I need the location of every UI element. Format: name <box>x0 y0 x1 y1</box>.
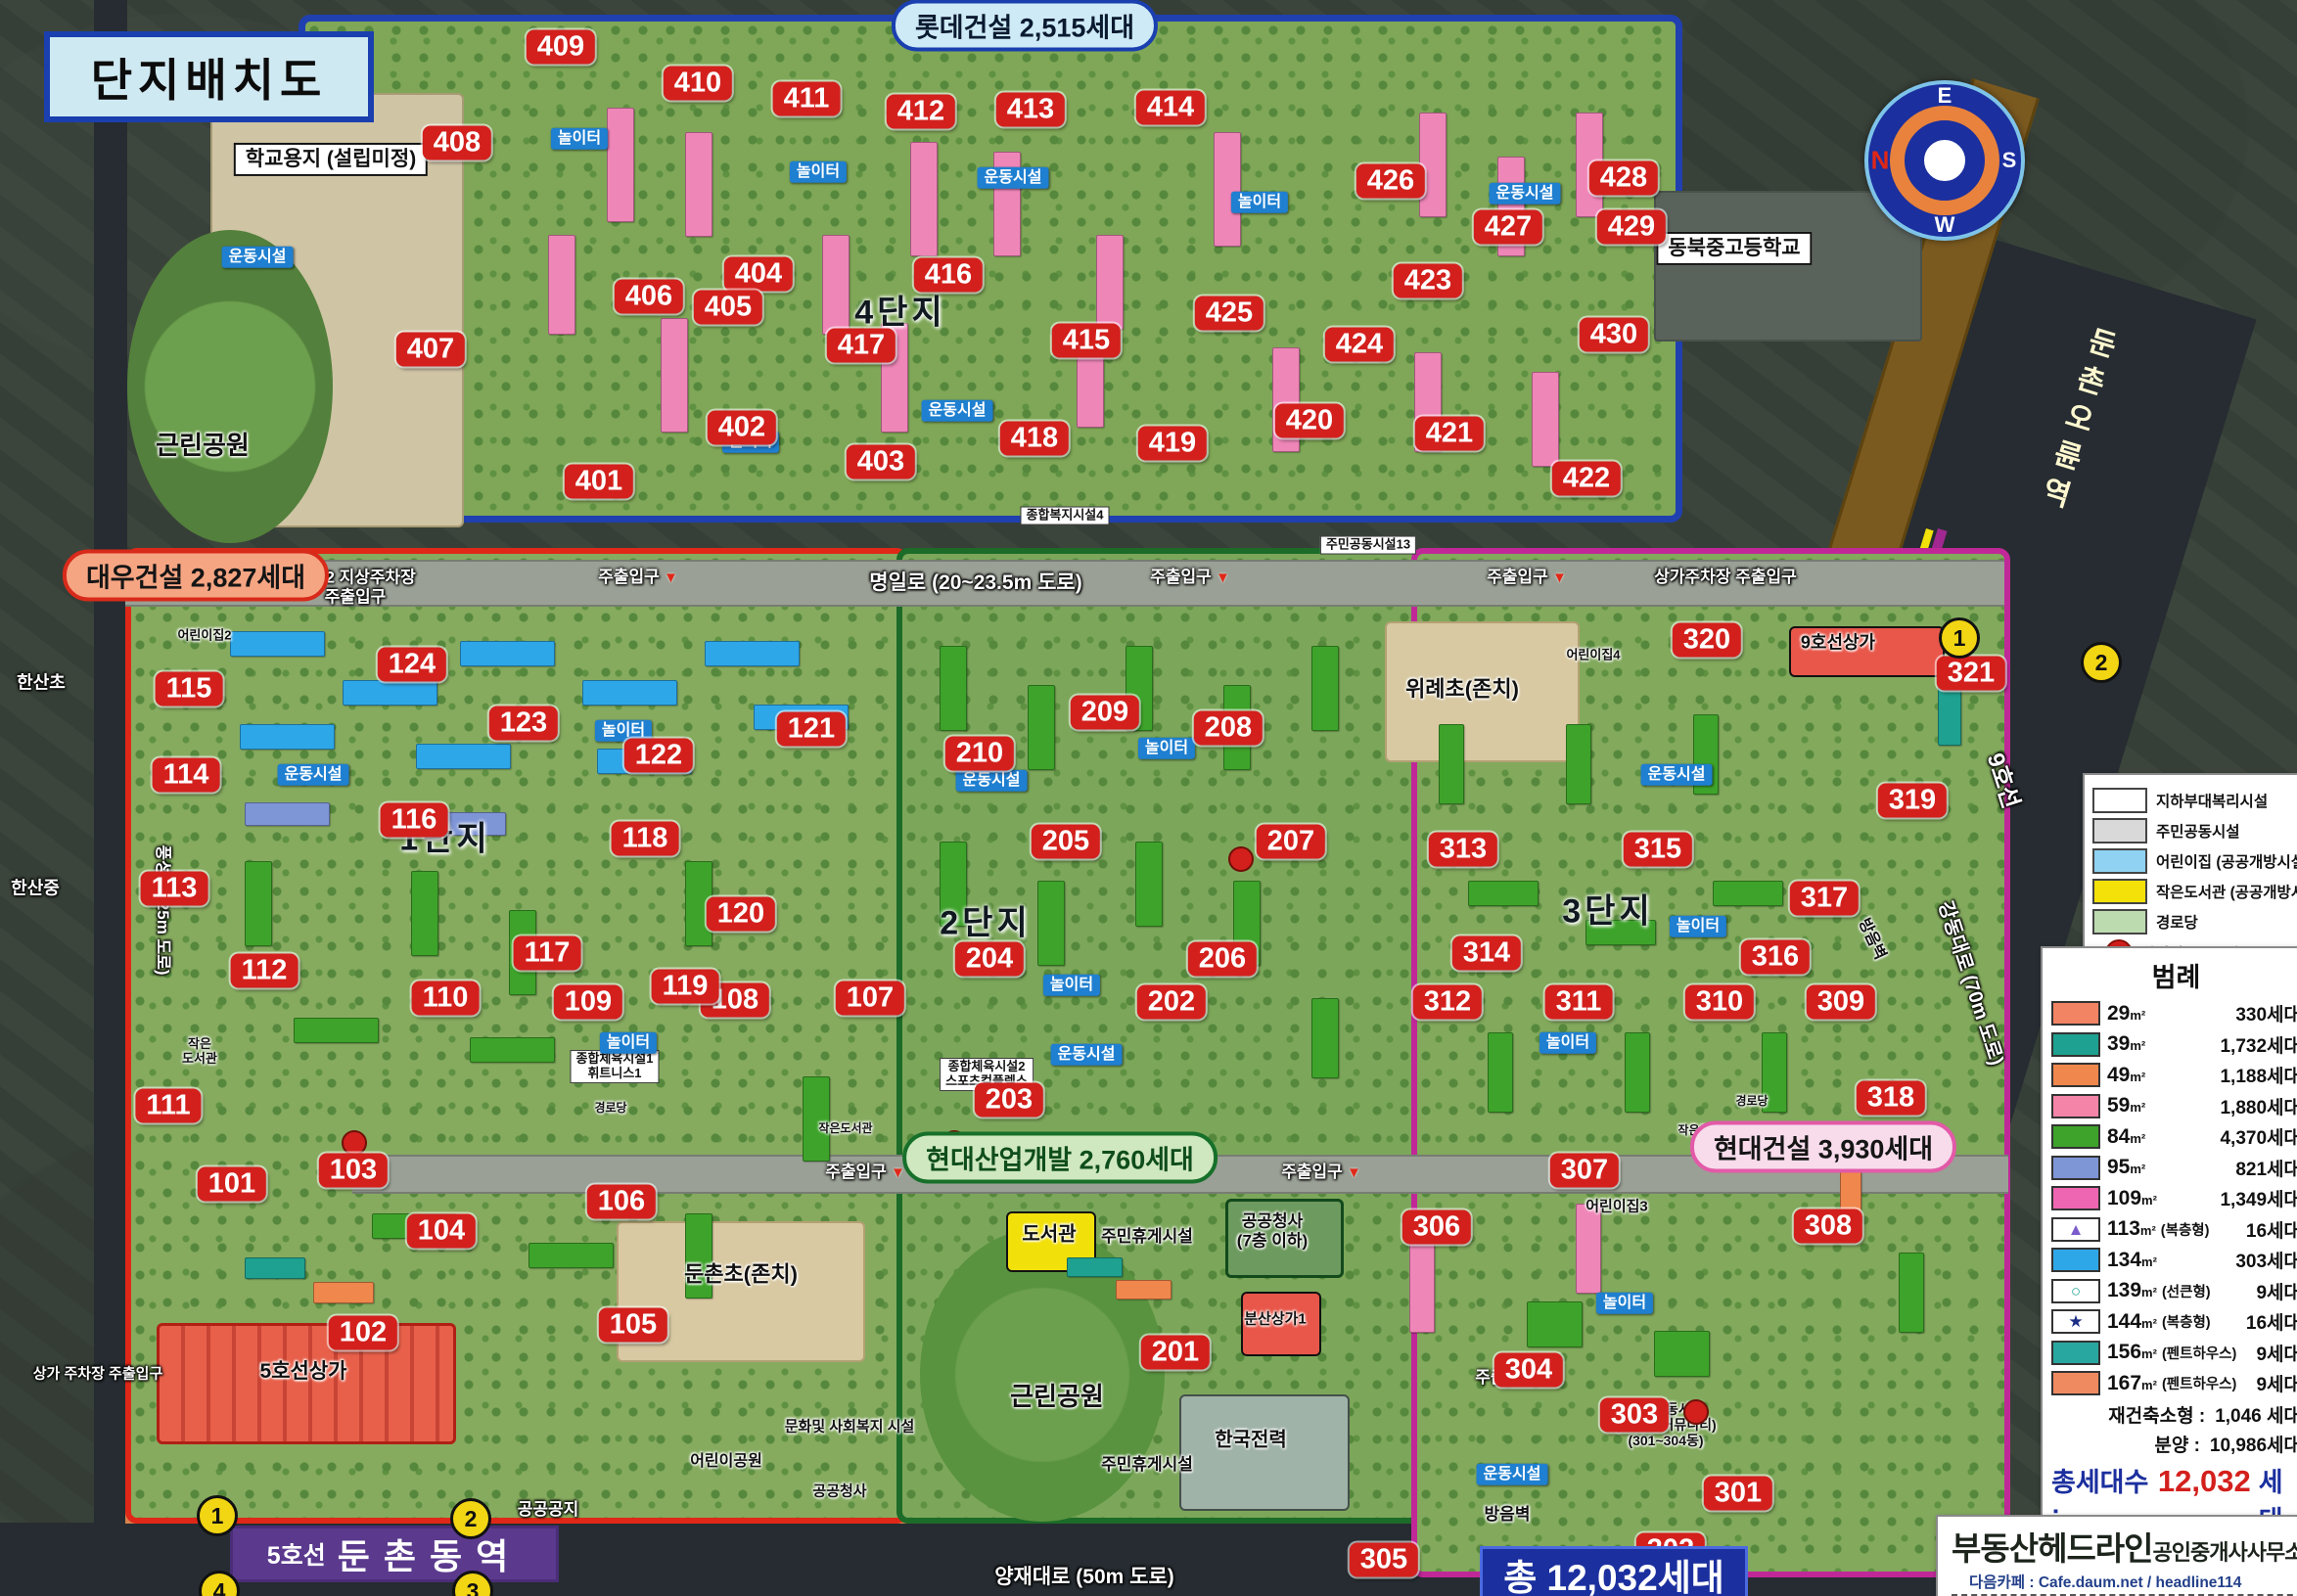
line5-station-name: 둔촌동역 <box>338 1528 522 1579</box>
map-label: 작은도서관 <box>818 1122 872 1136</box>
area-size: 59m² <box>2107 1094 2145 1117</box>
building-footprint <box>661 318 688 433</box>
map-label: 어린이집2 <box>177 629 231 644</box>
facility-label: 놀이터 <box>1043 975 1100 996</box>
facility-label: 운동시설 <box>956 770 1028 792</box>
map-label: 문화및 사회복지 시설 <box>785 1418 915 1435</box>
building-badge-115: 115 <box>156 672 223 707</box>
exit-number-icon: 2 <box>2081 642 2122 683</box>
facility-swatch <box>2092 788 2147 813</box>
area-legend-row: 95m²821세대 <box>2051 1155 2297 1181</box>
building-badge-304: 304 <box>1494 1353 1563 1388</box>
building-badge-417: 417 <box>827 329 896 363</box>
map-label: 어린이집4 <box>1566 649 1620 663</box>
building-badge-429: 429 <box>1597 210 1666 245</box>
building-badge-103: 103 <box>319 1154 388 1188</box>
map-title-box: 단지배치도 <box>44 31 374 122</box>
building-footprint <box>1135 842 1163 927</box>
building-footprint <box>1116 1280 1171 1300</box>
area-legend-rows: 29m²330세대39m²1,732세대49m²1,188세대59m²1,880… <box>2051 1000 2297 1396</box>
total-households-badge: 총 12,032세대 <box>1480 1546 1748 1596</box>
kepco-plot <box>1179 1394 1350 1511</box>
building-footprint <box>1214 132 1241 247</box>
building-badge-403: 403 <box>847 445 915 479</box>
area-legend-row: 29m²330세대 <box>2051 1000 2297 1026</box>
map-label: 경로당 <box>594 1102 626 1116</box>
building-footprint <box>1028 685 1055 770</box>
building-badge-408: 408 <box>423 126 491 160</box>
building-footprint <box>1566 724 1591 804</box>
site-plan-map: 단지배치도 E S W N 둔촌오륜역 5호선 둔촌동역 총 12,032세대 … <box>0 0 2297 1596</box>
building-footprint <box>1037 881 1065 966</box>
building-footprint <box>1439 724 1464 804</box>
building-badge-413: 413 <box>996 93 1065 127</box>
park-center <box>920 1228 1165 1522</box>
building-badge-311: 311 <box>1545 985 1613 1020</box>
facility-label: 운동시설 <box>1641 764 1713 786</box>
building-badge-415: 415 <box>1052 324 1121 358</box>
map-label: 9호선상가 <box>1801 633 1875 654</box>
realtor-office-type: 공인중개사사무소 <box>2153 1540 2297 1565</box>
area-count: 1,349세대 <box>2220 1185 2297 1211</box>
map-label: 주민휴게시설 <box>1101 1455 1193 1475</box>
entrance-label: 주출입구 ▼ <box>1487 568 1567 587</box>
building-badge-320: 320 <box>1673 623 1741 658</box>
map-label: 3단지 <box>1562 892 1653 931</box>
building-badge-118: 118 <box>612 822 679 856</box>
building-footprint <box>1938 685 1961 746</box>
building-badge-418: 418 <box>1000 422 1069 456</box>
facility-swatch <box>2092 848 2147 874</box>
area-size: 139m² <box>2107 1279 2157 1302</box>
entrance-label: 주출입구 ▼ <box>598 568 678 587</box>
area-legend-row: 156m²(펜트하우스)9세대 <box>2051 1340 2297 1366</box>
map-label: 경로당 <box>1735 1095 1768 1109</box>
building-badge-409: 409 <box>527 30 595 65</box>
building-footprint <box>705 641 800 666</box>
park-nw <box>127 230 333 543</box>
map-label: 한국전력 <box>1215 1430 1287 1452</box>
legend-summary-rows: 재건축소형 :1,046 세대분양 :10,986세대 <box>2051 1401 2297 1457</box>
total-households-text: 총 12,032세대 <box>1503 1548 1724 1596</box>
summary-value: 10,986세대 <box>2210 1431 2297 1457</box>
map-label: 분산상가1 <box>1244 1310 1307 1327</box>
building-badge-419: 419 <box>1138 427 1207 461</box>
area-size: 84m² <box>2107 1125 2145 1149</box>
building-footprint <box>528 1243 614 1268</box>
building-badge-317: 317 <box>1790 882 1859 916</box>
facility-label: 놀이터 <box>790 161 847 183</box>
facility-label: 운동시설 <box>978 167 1049 189</box>
builder-badge: 현대건설 3,930세대 <box>1690 1121 1956 1173</box>
building-footprint <box>1899 1253 1924 1333</box>
building-badge-209: 209 <box>1071 696 1139 730</box>
legend-title: 범례 <box>2051 956 2297 994</box>
building-badge-315: 315 <box>1624 833 1692 867</box>
building-footprint <box>1654 1331 1710 1377</box>
area-count: 16세대 <box>2246 1216 2297 1243</box>
building-badge-201: 201 <box>1141 1336 1210 1370</box>
building-footprint <box>822 235 850 335</box>
area-size: 39m² <box>2107 1032 2145 1056</box>
building-footprint <box>245 802 330 826</box>
building-badge-314: 314 <box>1452 936 1521 971</box>
building-badge-109: 109 <box>554 985 622 1020</box>
area-count: 9세대 <box>2256 1278 2297 1304</box>
building-badge-412: 412 <box>887 95 955 129</box>
road-west <box>94 0 127 1596</box>
building-footprint <box>1527 1301 1583 1347</box>
area-size: 167m² <box>2107 1372 2157 1395</box>
building-badge-401: 401 <box>565 465 633 499</box>
area-legend-row: ▲113m²(복층형)16세대 <box>2051 1216 2297 1243</box>
facility-label: 운동시설 <box>1051 1044 1123 1066</box>
building-badge-122: 122 <box>624 739 693 773</box>
area-count: 9세대 <box>2256 1340 2297 1366</box>
building-badge-121: 121 <box>777 712 846 747</box>
building-badge-303: 303 <box>1600 1398 1669 1433</box>
facility-legend-label: 지하부대복리시설 <box>2156 790 2268 811</box>
facility-label: 운동시설 <box>1490 183 1561 205</box>
area-size: 156m² <box>2107 1341 2157 1364</box>
map-label: 학교용지 (설립미정) <box>234 143 428 176</box>
building-badge-428: 428 <box>1589 161 1658 196</box>
building-footprint <box>910 142 938 256</box>
building-badge-117: 117 <box>514 936 581 971</box>
map-label: 도서관 <box>1022 1224 1076 1247</box>
area-size: 109m² <box>2107 1187 2157 1210</box>
building-badge-430: 430 <box>1580 318 1648 352</box>
building-badge-305: 305 <box>1350 1543 1418 1577</box>
area-count: 330세대 <box>2235 1000 2297 1026</box>
building-footprint <box>607 108 634 222</box>
map-label: 주민휴게시설 <box>1101 1227 1193 1247</box>
facility-legend-row: 작은도서관 (공공개방시설) <box>2092 879 2297 904</box>
builder-badge: 롯데건설 2,515세대 <box>892 0 1158 52</box>
area-legend-row: 167m²(펜트하우스)9세대 <box>2051 1370 2297 1396</box>
area-size: 29m² <box>2107 1002 2145 1026</box>
area-legend-row: 84m²4,370세대 <box>2051 1123 2297 1150</box>
summary-label: 분양 : <box>2154 1431 2200 1457</box>
area-size: 144m² <box>2107 1310 2157 1334</box>
building-footprint <box>1576 1204 1601 1294</box>
map-label: 어린이공원 <box>690 1453 762 1471</box>
building-badge-427: 427 <box>1474 210 1542 245</box>
builder-badge: 대우건설 2,827세대 <box>63 550 329 602</box>
facility-legend-label: 주민공동시설 <box>2156 820 2240 842</box>
summary-value: 1,046 세대 <box>2215 1401 2297 1428</box>
exit-number-icon: 1 <box>197 1495 238 1536</box>
entrance-label: 주출입구 ▼ <box>1281 1163 1361 1182</box>
facility-swatch <box>2092 879 2147 904</box>
area-count: 4,370세대 <box>2220 1123 2297 1150</box>
map-label: 풍성로 (25m 도로) <box>153 845 172 976</box>
map-label: 둔촌초(존치) <box>684 1261 798 1286</box>
area-note: (선큰형) <box>2162 1281 2211 1301</box>
area-legend-row: 49m²1,188세대 <box>2051 1062 2297 1088</box>
building-badge-405: 405 <box>694 291 762 325</box>
building-footprint <box>313 1282 374 1303</box>
grand-total-value: 12,032 <box>2158 1464 2251 1499</box>
school-ne-campus <box>1654 191 1922 342</box>
building-badge-202: 202 <box>1137 985 1206 1020</box>
area-note: (펜트하우스) <box>2162 1343 2236 1363</box>
area-swatch <box>2051 1063 2100 1087</box>
facility-legend-label: 경로당 <box>2156 911 2198 933</box>
building-badge-203: 203 <box>975 1083 1043 1117</box>
building-footprint <box>1625 1032 1650 1113</box>
area-legend-row: ○139m²(선큰형)9세대 <box>2051 1278 2297 1304</box>
building-badge-107: 107 <box>836 981 904 1016</box>
map-label: 한산중 <box>11 879 60 899</box>
building-badge-208: 208 <box>1194 711 1263 746</box>
area-count: 16세대 <box>2246 1308 2297 1335</box>
area-size: 134m² <box>2107 1249 2157 1272</box>
building-badge-307: 307 <box>1550 1154 1619 1188</box>
building-badge-422: 422 <box>1552 462 1621 496</box>
building-badge-425: 425 <box>1195 296 1263 331</box>
map-label: 공공공지 <box>518 1500 579 1520</box>
map-label: 종합체육시설1 휘트니스1 <box>571 1050 660 1083</box>
compass-east: E <box>1938 83 1952 109</box>
area-legend-panel: 범례 29m²330세대39m²1,732세대49m²1,188세대59m²1,… <box>2041 946 2297 1547</box>
facility-legend-row: 어린이집 (공공개방시설) <box>2092 848 2297 874</box>
builder-badge: 현대산업개발 2,760세대 <box>902 1132 1217 1184</box>
building-footprint <box>245 1257 305 1279</box>
building-footprint <box>582 680 677 706</box>
compass-south: S <box>2002 148 2017 173</box>
building-footprint <box>470 1037 555 1063</box>
area-swatch <box>2051 1371 2100 1395</box>
area-size: 95m² <box>2107 1156 2145 1179</box>
facility-swatch <box>2092 818 2147 844</box>
map-label: 명일로 (20~23.5m 도로) <box>869 571 1081 595</box>
building-footprint <box>1067 1257 1123 1277</box>
area-count: 1,880세대 <box>2220 1093 2297 1119</box>
building-footprint <box>411 871 438 956</box>
area-count: 821세대 <box>2235 1155 2297 1181</box>
facility-label: 운동시설 <box>1477 1464 1548 1485</box>
building-badge-421: 421 <box>1415 417 1484 451</box>
building-badge-204: 204 <box>955 942 1024 977</box>
area-legend-row: ★144m²(복층형)16세대 <box>2051 1308 2297 1335</box>
map-label: 4단지 <box>854 294 945 332</box>
building-badge-321: 321 <box>1937 657 2005 691</box>
area-size: 113m² <box>2107 1217 2156 1241</box>
area-count: 303세대 <box>2235 1247 2297 1273</box>
building-footprint <box>1311 646 1339 731</box>
building-badge-101: 101 <box>198 1167 266 1202</box>
compass-north: N <box>1871 146 1890 176</box>
building-badge-207: 207 <box>1257 825 1325 859</box>
map-label: 2단지 <box>940 904 1031 942</box>
facility-label: 놀이터 <box>1596 1293 1653 1314</box>
building-badge-406: 406 <box>615 280 683 314</box>
legend-summary-row: 분양 :10,986세대 <box>2051 1431 2297 1457</box>
area-swatch <box>2051 1032 2100 1057</box>
compass-west: W <box>1935 212 1955 238</box>
building-badge-124: 124 <box>378 648 446 682</box>
area-swatch <box>2051 1156 2100 1180</box>
building-footprint <box>1409 1243 1435 1333</box>
building-badge-420: 420 <box>1275 404 1344 438</box>
building-badge-308: 308 <box>1794 1209 1862 1244</box>
exit-number-icon: 2 <box>450 1498 491 1539</box>
building-badge-407: 407 <box>396 333 465 367</box>
area-note: (복층형) <box>2162 1311 2211 1332</box>
facility-label: 놀이터 <box>600 1032 657 1054</box>
building-badge-112: 112 <box>231 954 299 988</box>
building-footprint <box>245 861 272 946</box>
special-facility-dot-icon <box>1228 846 1254 872</box>
building-badge-301: 301 <box>1704 1477 1772 1511</box>
facility-label: 운동시설 <box>922 400 993 422</box>
building-badge-210: 210 <box>945 737 1014 771</box>
building-badge-410: 410 <box>664 67 732 101</box>
facility-swatch <box>2092 909 2147 935</box>
area-swatch <box>2051 1248 2100 1272</box>
map-label: 종합복지시설4 <box>1021 507 1110 525</box>
legend-summary-row: 재건축소형 :1,046 세대 <box>2051 1401 2297 1428</box>
area-swatch <box>2051 1124 2100 1149</box>
facility-legend-label: 작은도서관 (공공개방시설) <box>2156 881 2297 902</box>
map-label: 근린공원 <box>156 432 250 461</box>
building-footprint <box>240 724 335 750</box>
entrance-label: 주출입구 ▼ <box>825 1163 905 1182</box>
realtor-name: 부동산헤드라인공인중개사사무소 <box>1952 1523 2297 1570</box>
area-swatch <box>2051 1094 2100 1118</box>
area-legend-row: 39m²1,732세대 <box>2051 1031 2297 1058</box>
building-badge-123: 123 <box>489 707 558 741</box>
building-footprint <box>1468 881 1539 906</box>
area-legend-row: 109m²1,349세대 <box>2051 1185 2297 1211</box>
building-footprint <box>343 680 437 706</box>
facility-label: 운동시설 <box>222 247 294 268</box>
map-label: 공공청사 (7층 이하) <box>1237 1211 1308 1250</box>
realtor-cafe: 다음카페 : Cafe.daum.net / headline114 <box>1969 1571 2297 1592</box>
building-badge-120: 120 <box>707 897 775 932</box>
building-footprint <box>685 132 712 237</box>
facility-label: 놀이터 <box>1670 916 1726 937</box>
map-label: 상가 주차장 주출입구 <box>33 1365 163 1382</box>
building-badge-116: 116 <box>381 803 448 838</box>
building-badge-416: 416 <box>914 258 983 293</box>
line5-number: 5호선 <box>267 1536 326 1572</box>
building-footprint <box>1713 881 1783 906</box>
area-legend-row: 134m²303세대 <box>2051 1247 2297 1273</box>
area-count: 1,732세대 <box>2220 1031 2297 1058</box>
compass-hub <box>1921 137 1968 184</box>
building-badge-402: 402 <box>708 411 776 445</box>
entrance-label: 주출입구 ▼ <box>1150 568 1230 587</box>
map-label: 위례초(존치) <box>1405 676 1519 701</box>
building-badge-111: 111 <box>135 1089 201 1123</box>
area-note: (복층형) <box>2161 1219 2210 1240</box>
building-footprint <box>548 235 575 335</box>
realtor-info-panel: 부동산헤드라인공인중개사사무소 다음카페 : Cafe.daum.net / h… <box>1936 1515 2297 1596</box>
page-title: 단지배치도 <box>91 45 328 110</box>
summary-label: 재건축소형 : <box>2108 1401 2205 1428</box>
exit-number-icon: 1 <box>1939 617 1980 659</box>
building-badge-205: 205 <box>1032 825 1100 859</box>
building-badge-316: 316 <box>1741 940 1810 975</box>
special-facility-dot-icon <box>1683 1399 1709 1425</box>
facility-legend-row: 주민공동시설 <box>2092 818 2297 844</box>
building-badge-404: 404 <box>724 257 793 292</box>
building-footprint <box>230 631 325 657</box>
map-label: 작은 도서관 <box>182 1037 217 1067</box>
building-badge-424: 424 <box>1325 328 1394 362</box>
special-facility-dot-icon <box>342 1130 367 1156</box>
area-size: 49m² <box>2107 1064 2145 1087</box>
area-swatch <box>2051 1186 2100 1210</box>
map-label: 동북중고등학교 <box>1656 232 1812 265</box>
map-label: 상가주차장 주출입구 <box>1654 568 1796 587</box>
line5-station-band: 5호선 둔촌동역 <box>233 1528 556 1579</box>
building-badge-310: 310 <box>1685 985 1754 1020</box>
facility-legend-label: 어린이집 (공공개방시설) <box>2156 850 2297 872</box>
facility-label: 운동시설 <box>278 764 349 786</box>
building-footprint <box>1096 235 1124 330</box>
facility-label: 놀이터 <box>1539 1032 1596 1054</box>
building-footprint <box>1532 372 1559 467</box>
area-swatch: ○ <box>2051 1279 2100 1303</box>
map-label: 방음벽 <box>1485 1505 1531 1525</box>
building-badge-319: 319 <box>1878 784 1947 818</box>
building-footprint <box>460 641 555 666</box>
building-footprint <box>940 646 967 731</box>
area-swatch <box>2051 1341 2100 1365</box>
area-note: (펜트하우스) <box>2162 1373 2236 1393</box>
map-label: 양재대로 (50m 도로) <box>994 1566 1174 1589</box>
map-label: 어린이집3 <box>1585 1198 1648 1214</box>
building-badge-113: 113 <box>141 872 208 906</box>
building-badge-105: 105 <box>599 1308 667 1343</box>
building-footprint <box>803 1076 830 1162</box>
building-footprint <box>416 744 511 769</box>
building-badge-110: 110 <box>412 981 480 1016</box>
area-swatch: ▲ <box>2051 1217 2100 1242</box>
map-label: 5호선상가 <box>260 1360 347 1384</box>
facility-label: 놀이터 <box>1138 738 1195 759</box>
building-badge-313: 313 <box>1429 833 1497 867</box>
area-swatch <box>2051 1001 2100 1026</box>
building-badge-423: 423 <box>1394 264 1462 298</box>
building-badge-206: 206 <box>1188 942 1257 977</box>
building-badge-102: 102 <box>329 1316 397 1350</box>
compass-rose-icon: E S W N <box>1864 80 2025 241</box>
map-label: 주민공동시설13 <box>1320 536 1416 555</box>
map-label: 한산초 <box>17 673 66 694</box>
building-footprint <box>1311 998 1339 1078</box>
facility-legend-row: 경로당 <box>2092 909 2297 935</box>
building-badge-114: 114 <box>153 758 220 793</box>
area-count: 1,188세대 <box>2220 1062 2297 1088</box>
map-label: 공공청사 <box>812 1482 866 1499</box>
building-footprint <box>1488 1032 1513 1113</box>
map-label: 근린공원 <box>1010 1383 1104 1412</box>
building-badge-411: 411 <box>773 82 841 116</box>
building-badge-309: 309 <box>1807 985 1875 1020</box>
facility-label: 놀이터 <box>551 128 608 150</box>
building-badge-312: 312 <box>1413 985 1482 1020</box>
facility-label: 놀이터 <box>1231 192 1288 213</box>
building-badge-426: 426 <box>1356 164 1425 199</box>
building-footprint <box>1419 113 1447 217</box>
building-badge-306: 306 <box>1402 1210 1471 1245</box>
building-badge-414: 414 <box>1136 91 1205 125</box>
building-badge-318: 318 <box>1857 1081 1925 1116</box>
